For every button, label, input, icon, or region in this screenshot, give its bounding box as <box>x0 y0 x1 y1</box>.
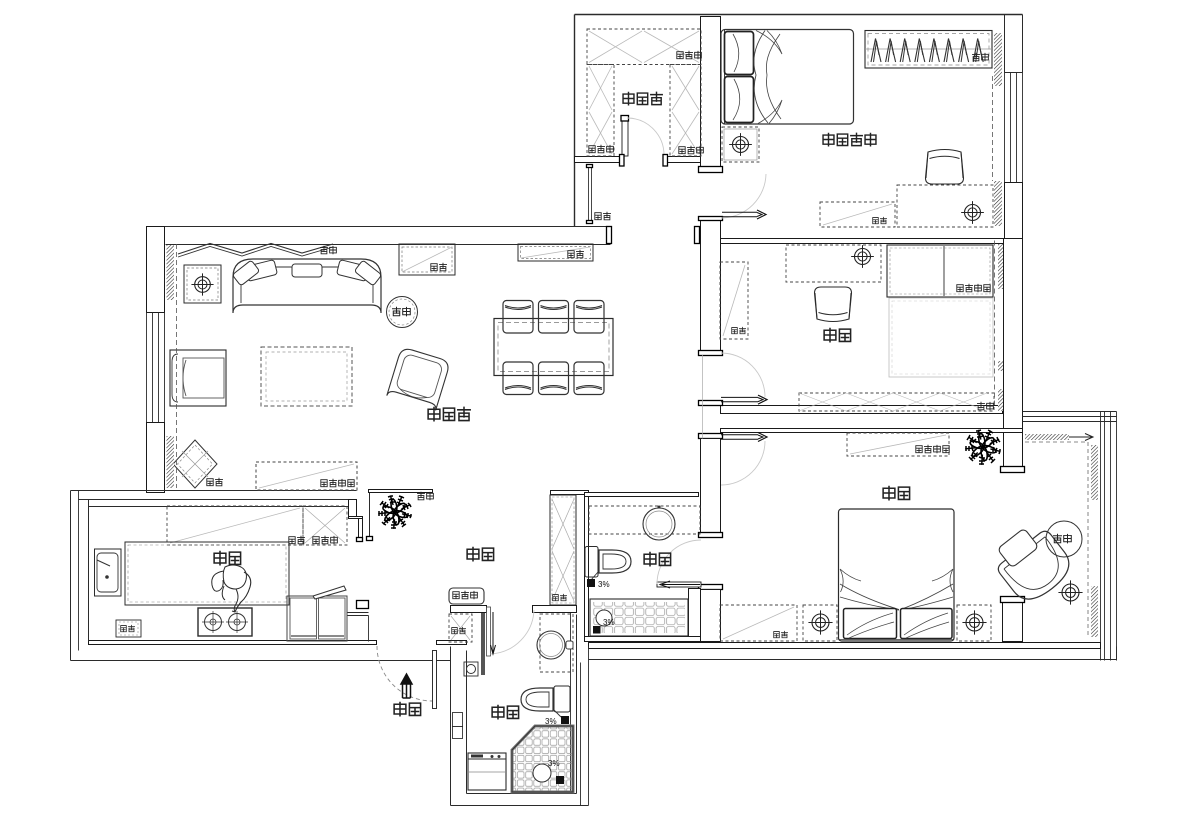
svg-text:3%: 3% <box>598 580 610 589</box>
svg-text:3%: 3% <box>548 759 560 768</box>
svg-text:3%: 3% <box>603 618 615 627</box>
